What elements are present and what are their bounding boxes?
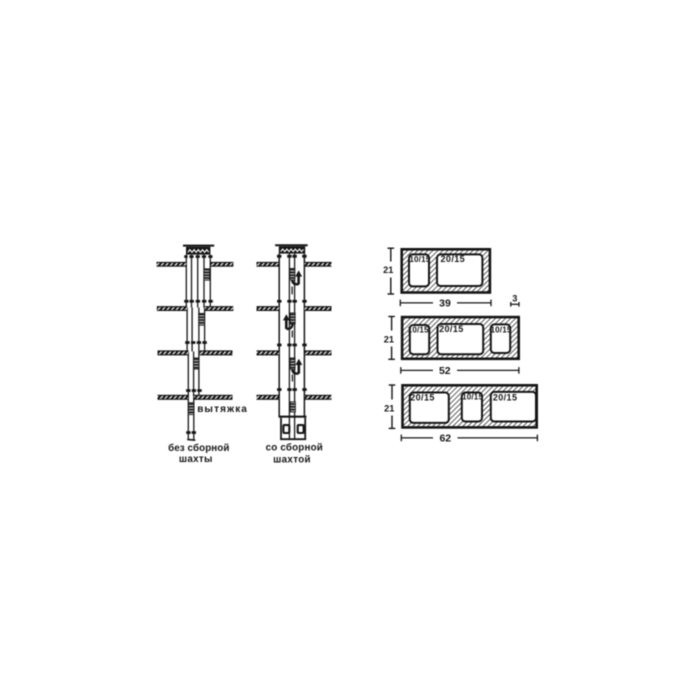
svg-text:21: 21: [384, 404, 394, 414]
svg-text:52: 52: [439, 365, 451, 377]
svg-text:21: 21: [383, 265, 393, 275]
svg-text:20/15: 20/15: [410, 392, 435, 402]
svg-text:вытяжка: вытяжка: [197, 404, 248, 415]
svg-text:10/15: 10/15: [409, 255, 430, 264]
svg-text:без сборной: без сборной: [168, 443, 229, 454]
svg-text:шахты: шахты: [179, 454, 213, 465]
svg-text:10/15: 10/15: [490, 326, 511, 335]
svg-text:20/15: 20/15: [439, 324, 464, 334]
svg-text:шахтой: шахтой: [273, 454, 311, 465]
svg-text:10/15: 10/15: [462, 393, 483, 402]
svg-text:20/15: 20/15: [493, 392, 518, 402]
svg-text:3: 3: [512, 293, 517, 303]
svg-text:20/15: 20/15: [441, 254, 466, 264]
svg-text:62: 62: [439, 433, 451, 445]
svg-text:10/15: 10/15: [408, 326, 429, 335]
svg-text:39: 39: [439, 298, 451, 310]
svg-text:21: 21: [384, 335, 394, 345]
svg-text:со сборной: со сборной: [266, 443, 323, 454]
